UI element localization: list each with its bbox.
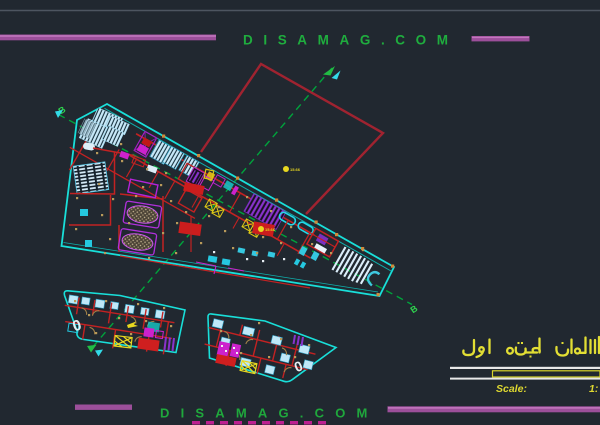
svg-text:DISAMAG.COM: DISAMAG.COM — [243, 33, 459, 48]
svg-text:Scale:: Scale: — [496, 383, 527, 395]
svg-text:1:: 1: — [589, 383, 598, 395]
svg-text:DISAMAG.COM: DISAMAG.COM — [160, 406, 379, 421]
svg-text:15.66: 15.66 — [290, 167, 301, 172]
svg-text:15.66: 15.66 — [265, 227, 276, 232]
